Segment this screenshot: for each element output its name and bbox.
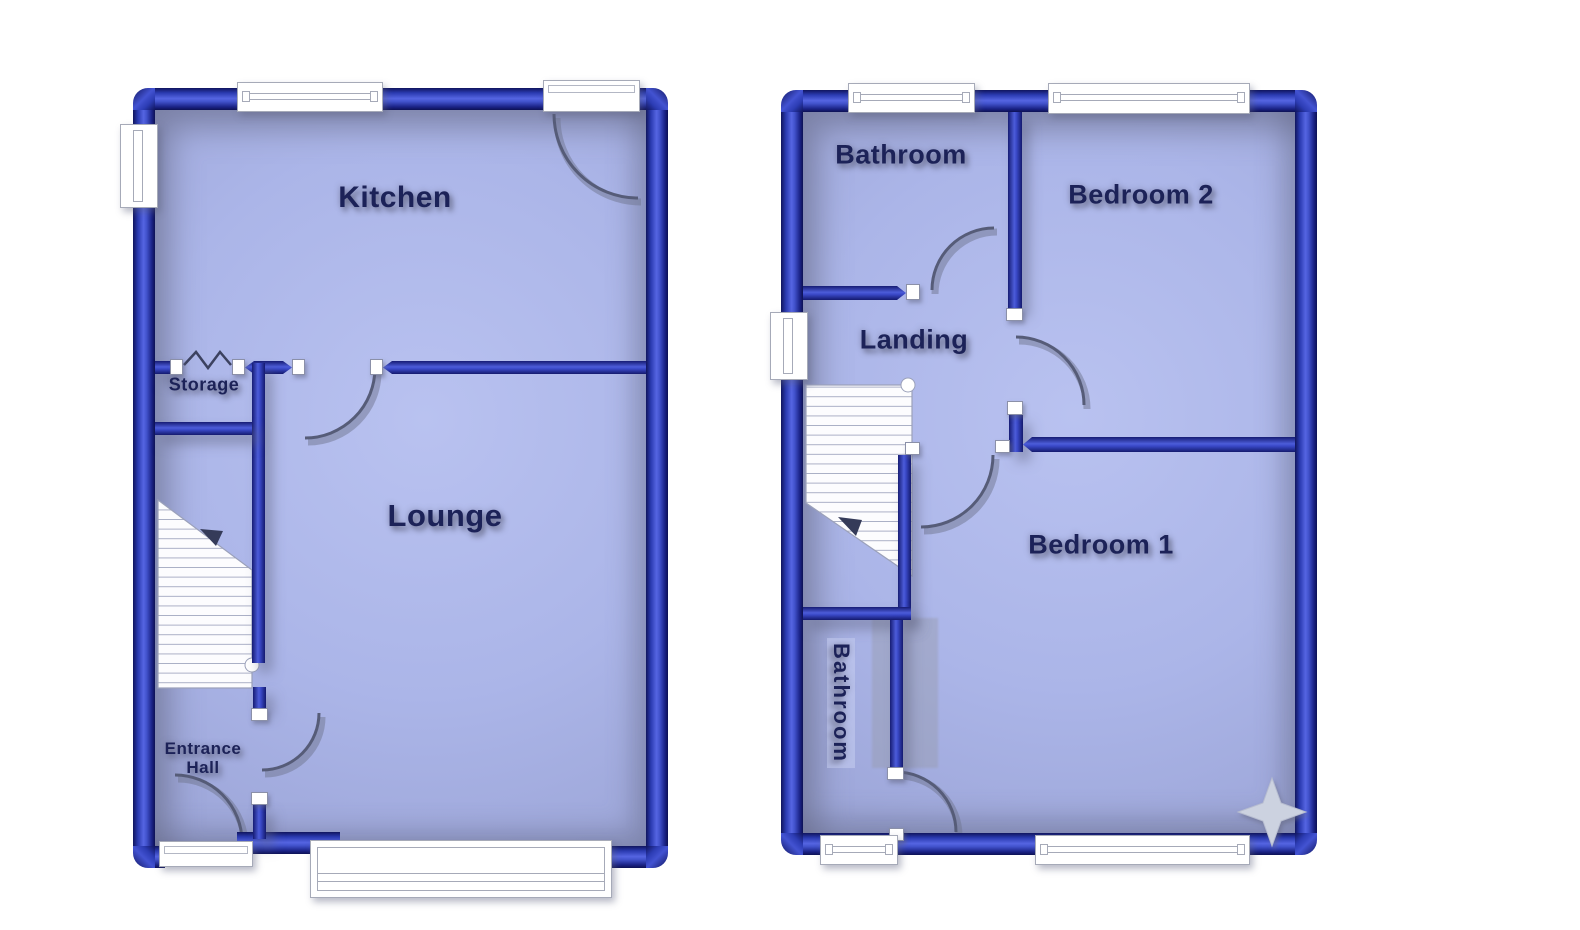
window — [1048, 83, 1250, 114]
wall — [133, 110, 155, 846]
wall — [253, 805, 266, 839]
wall-corner — [1295, 833, 1317, 855]
wall-corner — [781, 833, 803, 855]
room-label-landing: Landing — [860, 325, 968, 356]
window — [770, 312, 808, 380]
room-label-lounge: Lounge — [388, 498, 503, 534]
door-jamb — [370, 359, 383, 375]
door-jamb — [292, 359, 305, 375]
wall-corner — [133, 88, 155, 110]
window — [820, 835, 898, 865]
wall — [155, 361, 170, 374]
wall-corner — [1295, 90, 1317, 112]
wall-corner — [646, 846, 668, 868]
door-jamb — [906, 284, 920, 300]
door-jamb — [251, 792, 268, 805]
room-label-bedroom1: Bedroom 1 — [1028, 530, 1174, 561]
door-jamb — [905, 442, 920, 455]
door-jamb — [251, 708, 268, 721]
patio-window — [310, 840, 612, 898]
door-jamb — [995, 440, 1010, 453]
first-floor-plan: Bathroom Bedroom 2 Landing Bedroom 1 Bat… — [781, 90, 1317, 855]
room-label-storage: Storage — [169, 375, 240, 396]
wall — [646, 110, 668, 846]
room-label-bathroom-top: Bathroom — [835, 140, 967, 171]
wall — [803, 286, 906, 300]
window — [848, 83, 975, 113]
wall-corner — [646, 88, 668, 110]
room-label-bedroom2: Bedroom 2 — [1068, 180, 1214, 211]
room-label-entrance-hall: Entrance Hall — [155, 739, 251, 777]
door-jamb — [232, 359, 245, 375]
wall-corner — [781, 90, 803, 112]
window — [1035, 835, 1250, 865]
wall — [803, 607, 911, 620]
door-jamb — [1006, 308, 1023, 321]
wall — [253, 687, 266, 708]
wall-corner — [133, 846, 155, 868]
wall — [383, 361, 646, 374]
wall — [155, 422, 252, 435]
wall — [1009, 415, 1023, 452]
wall — [781, 112, 803, 833]
wall — [1008, 112, 1022, 308]
front-door-threshold — [159, 841, 253, 867]
door-jamb — [1007, 401, 1023, 415]
room-label-kitchen: Kitchen — [338, 181, 452, 215]
wall — [252, 363, 265, 663]
room-label-bathroom-bottom: Bathroom — [827, 638, 855, 768]
door-threshold — [543, 80, 640, 112]
ground-floor-plan: Kitchen Storage Lounge Entrance Hall — [133, 88, 668, 868]
render-artifact — [872, 618, 938, 768]
ground-floor-area — [155, 110, 646, 846]
window — [237, 82, 383, 112]
wall — [890, 620, 903, 767]
wall — [1023, 437, 1295, 452]
wall — [1295, 112, 1317, 833]
door-jamb — [170, 359, 183, 375]
wall — [898, 455, 911, 620]
door-jamb — [887, 767, 904, 780]
floorplan-canvas: Kitchen Storage Lounge Entrance Hall — [0, 0, 1580, 930]
window — [120, 124, 158, 208]
